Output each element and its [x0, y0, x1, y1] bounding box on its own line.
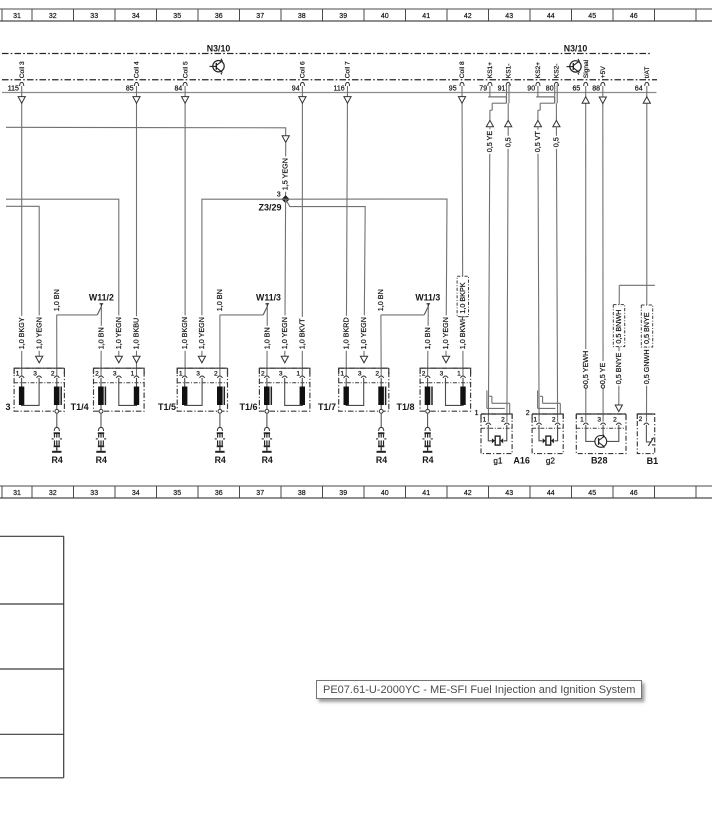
svg-text:0,5 YE: 0,5 YE	[485, 131, 494, 153]
svg-text:R4: R4	[376, 455, 387, 465]
svg-text:R4: R4	[96, 455, 107, 465]
svg-text:2: 2	[501, 416, 505, 423]
svg-text:34: 34	[132, 13, 140, 20]
svg-text:1: 1	[457, 370, 461, 377]
svg-text:3: 3	[113, 370, 117, 377]
svg-text:W11/3: W11/3	[415, 293, 440, 303]
svg-text:1,5 YEGN: 1,5 YEGN	[281, 158, 290, 190]
svg-text:1,0 BN: 1,0 BN	[376, 289, 385, 311]
svg-text:1,0 BKGN: 1,0 BKGN	[180, 317, 189, 349]
svg-text:T1/5: T1/5	[158, 402, 176, 412]
svg-text:42: 42	[464, 13, 472, 20]
svg-text:+5V: +5V	[600, 66, 607, 79]
svg-text:2: 2	[639, 416, 643, 423]
svg-text:2: 2	[95, 370, 99, 377]
svg-text:0,5: 0,5	[552, 137, 561, 147]
svg-text:42: 42	[464, 490, 472, 497]
svg-text:80: 80	[546, 86, 554, 93]
svg-text:3: 3	[597, 416, 601, 423]
svg-text:3: 3	[279, 370, 283, 377]
svg-text:0,5 YE: 0,5 YE	[598, 363, 607, 385]
svg-text:W11/2: W11/2	[89, 293, 114, 303]
svg-text:0,5 YEWH: 0,5 YEWH	[581, 351, 590, 384]
svg-text:1,0 YEGN: 1,0 YEGN	[359, 317, 368, 349]
svg-text:44: 44	[547, 13, 555, 20]
svg-text:1,0 YEGN: 1,0 YEGN	[34, 317, 43, 349]
svg-text:2: 2	[375, 370, 379, 377]
svg-text:Z3/29: Z3/29	[258, 203, 281, 213]
svg-text:2: 2	[552, 416, 556, 423]
svg-text:46: 46	[630, 490, 638, 497]
svg-text:1,0 BN: 1,0 BN	[96, 327, 105, 349]
svg-text:N3/10: N3/10	[207, 43, 231, 53]
svg-text:33: 33	[90, 490, 98, 497]
svg-text:1,0 BKRD: 1,0 BKRD	[342, 317, 351, 349]
svg-text:95: 95	[449, 86, 457, 93]
svg-text:1: 1	[131, 370, 135, 377]
svg-text:2: 2	[261, 370, 265, 377]
svg-text:KS1+: KS1+	[487, 62, 494, 78]
svg-text:1,0 BKWH: 1,0 BKWH	[458, 316, 467, 350]
svg-text:R4: R4	[422, 455, 433, 465]
svg-text:45: 45	[588, 13, 596, 20]
svg-text:1,0 BKPK: 1,0 BKPK	[458, 282, 467, 313]
svg-text:64: 64	[635, 86, 643, 93]
svg-text:65: 65	[573, 86, 581, 93]
svg-text:Coil 7: Coil 7	[345, 61, 352, 78]
svg-text:31: 31	[13, 13, 21, 20]
svg-text:115: 115	[8, 86, 19, 93]
svg-text:94: 94	[292, 86, 300, 93]
svg-text:Coil 5: Coil 5	[182, 61, 189, 78]
svg-text:32: 32	[49, 13, 57, 20]
svg-text:0,5 GNWH: 0,5 GNWH	[642, 349, 651, 384]
svg-text:KS1-: KS1-	[505, 64, 512, 79]
svg-text:A16: A16	[513, 456, 530, 466]
svg-text:1,0 BN: 1,0 BN	[52, 289, 61, 311]
svg-text:3: 3	[277, 192, 281, 199]
svg-text:88: 88	[592, 86, 600, 93]
svg-text:3: 3	[440, 370, 444, 377]
svg-text:B1: B1	[647, 456, 659, 466]
svg-text:g2: g2	[546, 457, 556, 466]
svg-text:35: 35	[173, 490, 181, 497]
svg-text:1: 1	[16, 370, 20, 377]
svg-text:Coil 6: Coil 6	[300, 61, 307, 78]
svg-text:43: 43	[505, 490, 513, 497]
svg-text:1,0 BKGY: 1,0 BKGY	[17, 317, 26, 349]
svg-text:1,0 BN: 1,0 BN	[215, 289, 224, 311]
svg-text:37: 37	[256, 490, 264, 497]
svg-text:90: 90	[527, 86, 535, 93]
svg-text:84: 84	[175, 86, 183, 93]
svg-text:44: 44	[547, 490, 555, 497]
svg-text:W11/3: W11/3	[256, 293, 281, 303]
svg-text:1,0 BN: 1,0 BN	[262, 327, 271, 349]
svg-text:39: 39	[339, 490, 347, 497]
svg-text:0,5 BNYE: 0,5 BNYE	[614, 352, 623, 384]
svg-text:1,0 YEGN: 1,0 YEGN	[441, 317, 450, 349]
svg-text:N3/10: N3/10	[564, 43, 588, 53]
svg-text:1: 1	[340, 370, 344, 377]
svg-text:85: 85	[126, 86, 134, 93]
svg-text:Coil 4: Coil 4	[134, 61, 141, 78]
svg-text:KS2-: KS2-	[554, 64, 561, 79]
svg-text:32: 32	[49, 490, 57, 497]
svg-text:1: 1	[580, 416, 584, 423]
svg-text:B28: B28	[591, 455, 608, 465]
svg-text:37: 37	[256, 13, 264, 20]
svg-text:1,0 BKBU: 1,0 BKBU	[132, 318, 141, 350]
svg-text:34: 34	[132, 490, 140, 497]
svg-text:39: 39	[339, 13, 347, 20]
svg-text:2: 2	[51, 370, 55, 377]
svg-text:1,0 YEGN: 1,0 YEGN	[197, 317, 206, 349]
svg-text:38: 38	[298, 490, 306, 497]
svg-text:41: 41	[422, 13, 430, 20]
svg-text:3: 3	[196, 370, 200, 377]
svg-text:1: 1	[483, 416, 487, 423]
svg-text:1: 1	[533, 416, 537, 423]
svg-text:1: 1	[296, 370, 300, 377]
svg-text:46: 46	[630, 13, 638, 20]
svg-text:2: 2	[214, 370, 218, 377]
svg-text:38: 38	[298, 13, 306, 20]
svg-text:0,5 BNWH: 0,5 BNWH	[614, 310, 623, 344]
svg-text:45: 45	[588, 490, 596, 497]
svg-text:R4: R4	[215, 455, 226, 465]
svg-text:116: 116	[334, 86, 345, 93]
svg-text:2: 2	[422, 370, 426, 377]
svg-text:1,0 BKVT: 1,0 BKVT	[298, 318, 307, 349]
svg-text:91: 91	[498, 86, 506, 93]
svg-text:g1: g1	[493, 457, 503, 466]
svg-text:2: 2	[613, 416, 617, 423]
svg-text:3: 3	[33, 370, 37, 377]
svg-text:Coil 8: Coil 8	[459, 61, 466, 78]
svg-text:1: 1	[179, 370, 183, 377]
svg-text:1: 1	[475, 410, 479, 417]
svg-text:40: 40	[381, 490, 389, 497]
svg-text:35: 35	[173, 13, 181, 20]
svg-text:T1/6: T1/6	[239, 402, 257, 412]
svg-text:31: 31	[13, 490, 21, 497]
svg-text:1,0 BN: 1,0 BN	[423, 327, 432, 349]
svg-text:1,0 YEGN: 1,0 YEGN	[114, 317, 123, 349]
svg-text:36: 36	[215, 13, 223, 20]
svg-text:2: 2	[526, 410, 530, 417]
svg-text:KS2+: KS2+	[535, 62, 542, 78]
svg-text:33: 33	[90, 13, 98, 20]
svg-text:T1/7: T1/7	[318, 402, 336, 412]
svg-text:Signal: Signal	[583, 59, 590, 78]
svg-text:3: 3	[5, 402, 10, 412]
svg-text:36: 36	[215, 490, 223, 497]
svg-text:Coil 3: Coil 3	[19, 61, 26, 78]
svg-text:0,5 VT: 0,5 VT	[533, 131, 542, 153]
svg-text:3: 3	[358, 370, 362, 377]
svg-text:43: 43	[505, 13, 513, 20]
svg-text:R4: R4	[51, 455, 62, 465]
svg-text:T1/8: T1/8	[396, 402, 414, 412]
svg-text:T1/4: T1/4	[71, 402, 89, 412]
svg-text:79: 79	[479, 86, 487, 93]
svg-text:0,5 BNYE: 0,5 BNYE	[642, 312, 651, 344]
svg-text:41: 41	[422, 490, 430, 497]
svg-text:1,0 YEGN: 1,0 YEGN	[280, 317, 289, 349]
svg-text:t/AT: t/AT	[644, 67, 651, 79]
svg-text:R4: R4	[262, 455, 273, 465]
svg-text:40: 40	[381, 13, 389, 20]
svg-text:0,5: 0,5	[503, 137, 512, 147]
